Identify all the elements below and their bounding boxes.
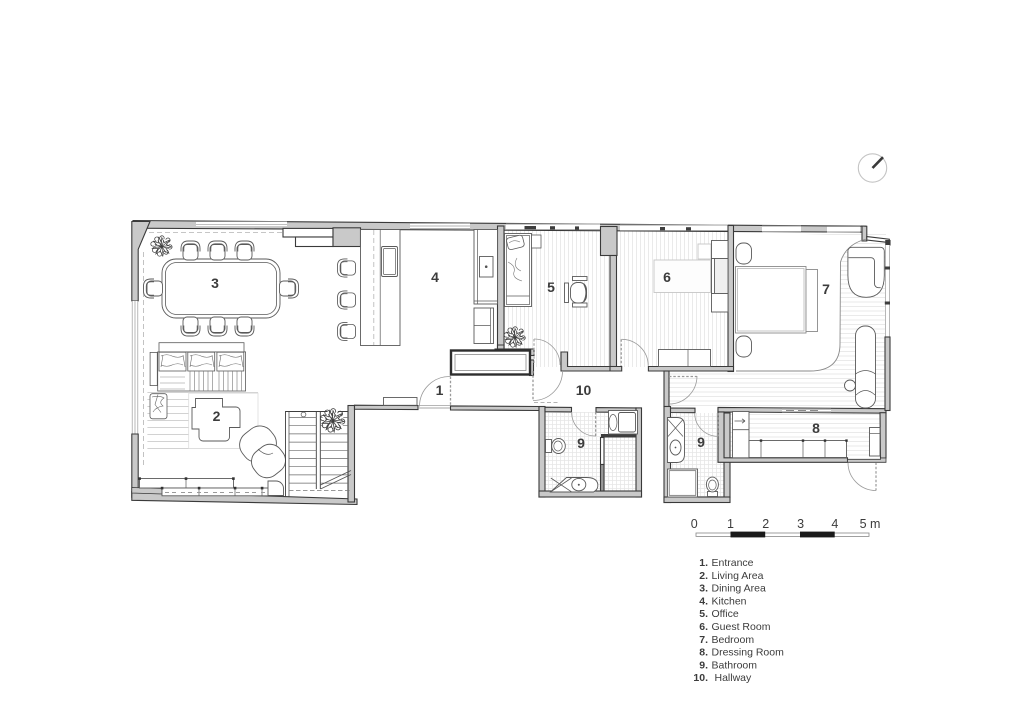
svg-text:Guest Room: Guest Room — [712, 621, 771, 633]
svg-text:Dressing Room: Dressing Room — [712, 647, 785, 659]
svg-text:Entrance: Entrance — [712, 557, 754, 569]
svg-text:7: 7 — [822, 281, 830, 297]
svg-text:9: 9 — [697, 434, 705, 450]
svg-text:4.: 4. — [699, 595, 708, 607]
svg-text:3: 3 — [797, 517, 804, 531]
svg-text:5 m: 5 m — [860, 517, 881, 531]
svg-text:1.: 1. — [699, 557, 708, 569]
svg-text:3: 3 — [211, 275, 219, 291]
svg-text:9: 9 — [577, 435, 585, 451]
svg-text:4: 4 — [431, 269, 439, 285]
svg-text:1: 1 — [727, 517, 734, 531]
svg-text:Bathroom: Bathroom — [712, 659, 758, 671]
svg-text:6.: 6. — [699, 621, 708, 633]
svg-text:5: 5 — [547, 279, 555, 295]
svg-text:Office: Office — [712, 608, 739, 620]
svg-text:4: 4 — [831, 517, 838, 531]
svg-text:0: 0 — [691, 517, 698, 531]
svg-text:Bedroom: Bedroom — [712, 634, 755, 646]
svg-text:Hallway: Hallway — [715, 672, 753, 684]
svg-text:Living Area: Living Area — [712, 570, 764, 582]
svg-text:2: 2 — [762, 517, 769, 531]
svg-text:9.: 9. — [699, 659, 708, 671]
svg-text:8.: 8. — [699, 647, 708, 659]
svg-text:10: 10 — [576, 382, 592, 398]
svg-text:2: 2 — [213, 408, 221, 424]
svg-text:Kitchen: Kitchen — [712, 595, 747, 607]
svg-text:8: 8 — [812, 420, 820, 436]
svg-text:7.: 7. — [699, 634, 708, 646]
svg-text:1: 1 — [436, 382, 444, 398]
svg-text:Dining Area: Dining Area — [712, 583, 766, 595]
svg-text:6: 6 — [663, 269, 671, 285]
svg-text:3.: 3. — [699, 583, 708, 595]
svg-text:5.: 5. — [699, 608, 708, 620]
svg-text:10.: 10. — [693, 672, 708, 684]
svg-text:2.: 2. — [699, 570, 708, 582]
